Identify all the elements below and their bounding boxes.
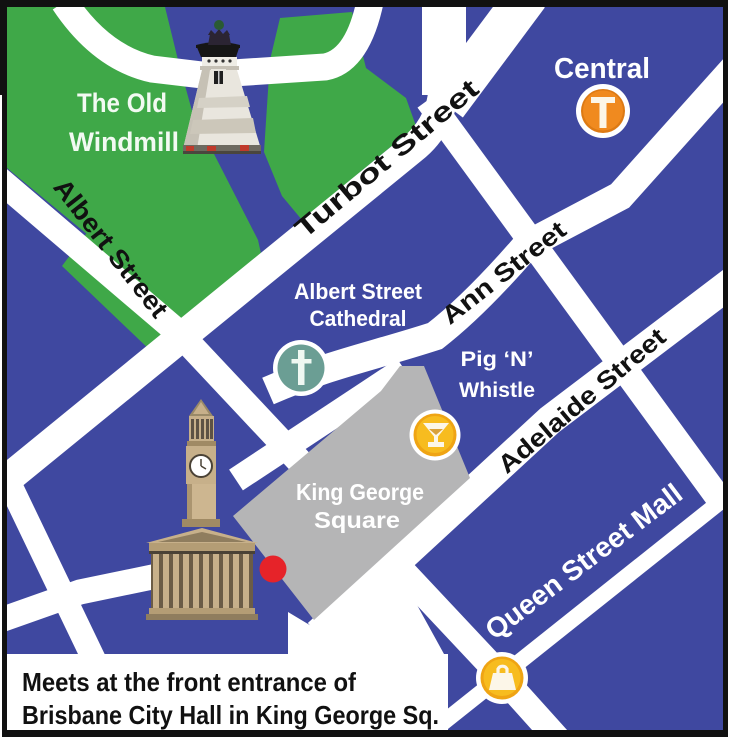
- svg-text:Pig ‘N’: Pig ‘N’: [461, 348, 534, 371]
- svg-text:Windmill: Windmill: [69, 127, 179, 157]
- svg-text:King George: King George: [296, 479, 424, 505]
- svg-text:Central: Central: [554, 53, 650, 85]
- svg-text:Meets at the front entrance of: Meets at the front entrance of: [22, 667, 356, 697]
- svg-text:Square: Square: [314, 507, 400, 533]
- svg-text:Brisbane City Hall in King Geo: Brisbane City Hall in King George Sq.: [22, 700, 439, 730]
- svg-text:Cathedral: Cathedral: [310, 306, 407, 331]
- svg-text:Albert Street: Albert Street: [294, 279, 423, 304]
- svg-text:Whistle: Whistle: [459, 379, 535, 402]
- svg-text:The Old: The Old: [77, 88, 167, 118]
